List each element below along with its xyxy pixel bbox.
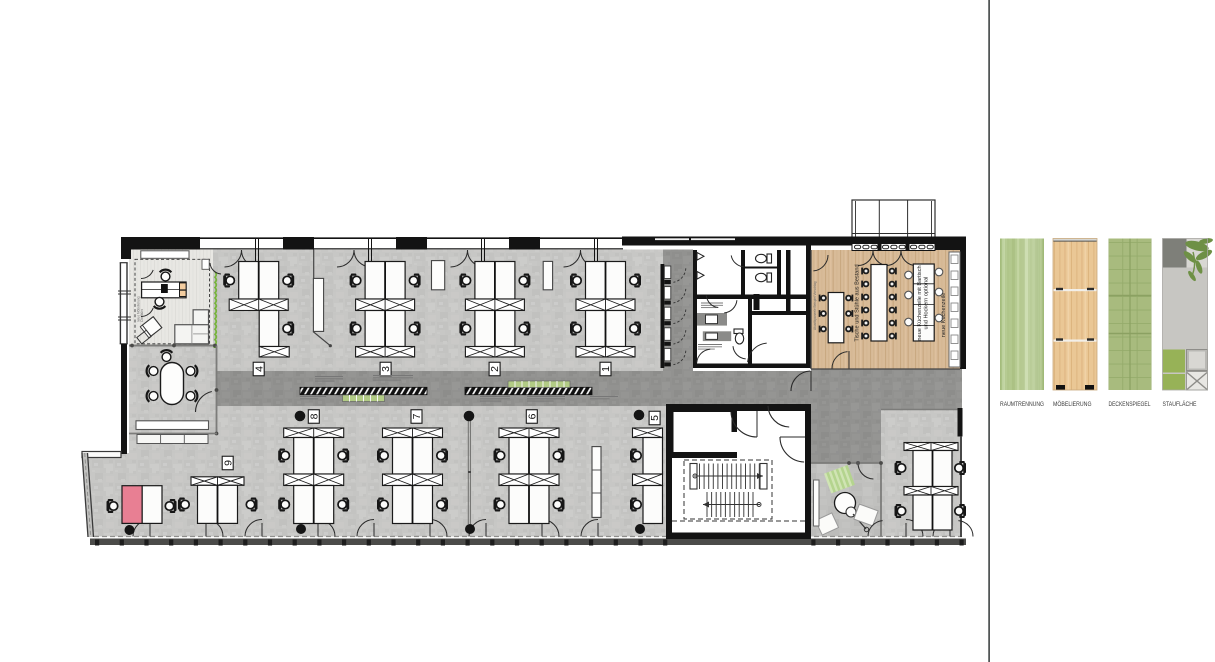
svg-text:Chefbüro: Chefbüro bbox=[140, 309, 144, 322]
svg-text:8: 8 bbox=[308, 413, 320, 419]
svg-text:RAUMTRENNUNG: RAUMTRENNUNG bbox=[1000, 401, 1044, 408]
svg-text:Tische und Stühle aus Bestand: Tische und Stühle aus Bestand bbox=[855, 264, 861, 341]
svg-text:1: 1 bbox=[600, 366, 612, 372]
svg-text:9: 9 bbox=[222, 460, 234, 466]
svg-text:5: 5 bbox=[649, 415, 661, 421]
svg-text:MÖBELIERUNG: MÖBELIERUNG bbox=[1053, 400, 1092, 408]
svg-text:7: 7 bbox=[411, 413, 423, 419]
svg-text:3: 3 bbox=[380, 366, 392, 372]
svg-text:2: 2 bbox=[489, 366, 501, 372]
svg-text:neue Küchenzeile: neue Küchenzeile bbox=[941, 293, 947, 337]
svg-text:Akustikpaneele Beispiel Vorsch: Akustikpaneele Beispiel Vorschlag bbox=[813, 281, 817, 330]
svg-text:4: 4 bbox=[253, 366, 265, 372]
svg-text:STAUFLÄCHE: STAUFLÄCHE bbox=[1163, 400, 1198, 408]
svg-text:und Hockern optional: und Hockern optional bbox=[924, 277, 930, 330]
svg-text:6: 6 bbox=[526, 413, 538, 419]
svg-text:DECKENSPIEGEL: DECKENSPIEGEL bbox=[1109, 401, 1151, 408]
svg-text:neue Küchenzeile mit Bartisch: neue Küchenzeile mit Bartisch bbox=[917, 265, 923, 340]
